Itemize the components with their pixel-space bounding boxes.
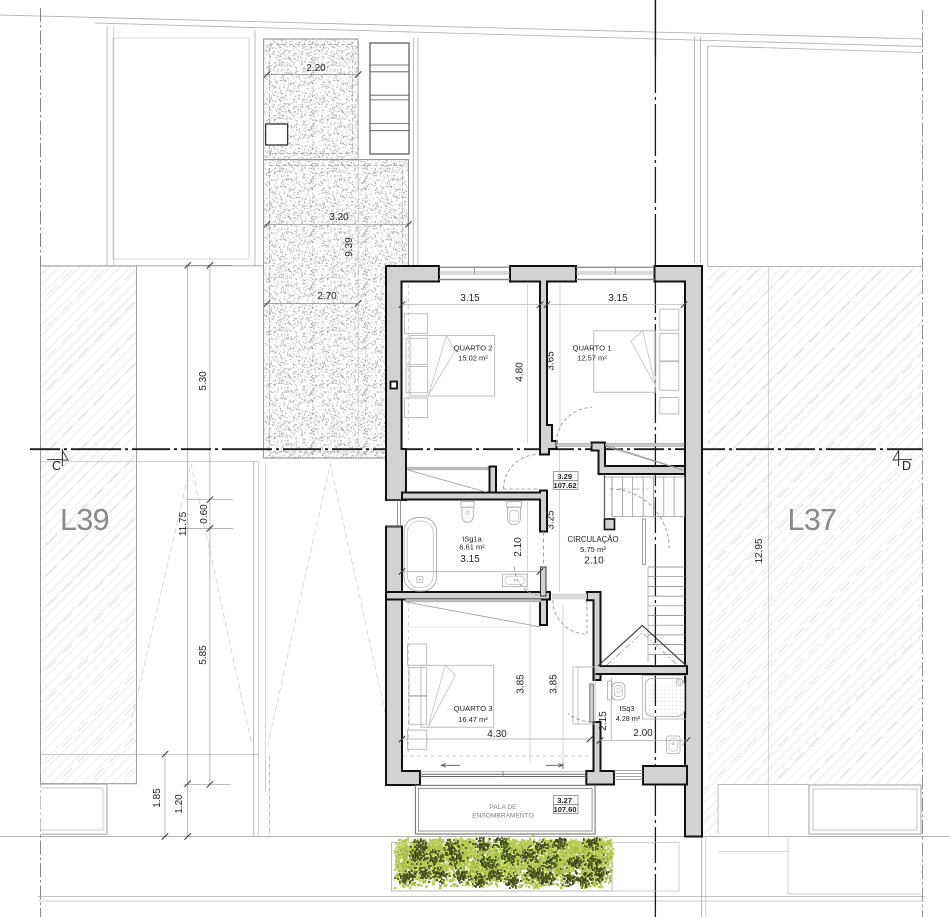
svg-text:3.85: 3.85 <box>516 674 527 694</box>
svg-text:4.28 m²: 4.28 m² <box>616 714 641 723</box>
svg-text:3.85: 3.85 <box>549 674 560 694</box>
svg-text:L37: L37 <box>787 503 836 537</box>
svg-text:D: D <box>902 459 911 473</box>
svg-text:3.15: 3.15 <box>460 293 480 304</box>
svg-text:9.39: 9.39 <box>344 237 355 257</box>
svg-text:QUARTO 3: QUARTO 3 <box>453 704 492 713</box>
svg-text:L39: L39 <box>60 503 109 537</box>
svg-text:6.61 m²: 6.61 m² <box>459 543 485 552</box>
svg-text:4.80: 4.80 <box>515 362 526 382</box>
svg-text:12.57 m²: 12.57 m² <box>577 354 607 363</box>
svg-text:3.15: 3.15 <box>460 554 480 565</box>
svg-text:11.75: 11.75 <box>178 511 189 536</box>
svg-text:2.15: 2.15 <box>598 711 609 731</box>
svg-text:15.02 m²: 15.02 m² <box>458 354 488 363</box>
svg-text:1.85: 1.85 <box>152 788 163 808</box>
svg-text:2.00: 2.00 <box>633 728 653 739</box>
svg-text:5.30: 5.30 <box>198 371 209 391</box>
svg-text:ISq3: ISq3 <box>620 704 635 713</box>
svg-text:2.70: 2.70 <box>317 291 337 302</box>
svg-text:0.60: 0.60 <box>199 504 210 524</box>
svg-text:5.75 m²: 5.75 m² <box>580 545 606 554</box>
svg-text:PALA DE: PALA DE <box>490 804 518 811</box>
svg-text:3.20: 3.20 <box>329 212 349 223</box>
svg-text:QUARTO 2: QUARTO 2 <box>453 344 492 353</box>
svg-text:ENSOMBRAMENTO: ENSOMBRAMENTO <box>472 813 533 820</box>
svg-text:2.10: 2.10 <box>584 556 604 567</box>
svg-text:5.85: 5.85 <box>198 645 209 665</box>
svg-text:107.60: 107.60 <box>554 805 577 814</box>
svg-text:CIRCULAÇÃO: CIRCULAÇÃO <box>567 535 618 544</box>
svg-text:1.20: 1.20 <box>174 794 185 814</box>
svg-text:16.47 m²: 16.47 m² <box>458 715 488 724</box>
svg-text:12.95: 12.95 <box>754 538 765 563</box>
svg-text:3.65: 3.65 <box>546 351 557 371</box>
svg-text:107.62: 107.62 <box>554 481 577 490</box>
svg-text:C: C <box>52 459 61 473</box>
svg-text:2.20: 2.20 <box>306 63 326 74</box>
svg-text:4.30: 4.30 <box>487 729 507 740</box>
svg-text:3.27: 3.27 <box>557 796 572 805</box>
svg-text:2.10: 2.10 <box>513 537 524 557</box>
svg-text:3.25: 3.25 <box>546 510 557 530</box>
svg-text:3.15: 3.15 <box>608 293 628 304</box>
svg-text:QUARTO 1: QUARTO 1 <box>572 344 611 353</box>
